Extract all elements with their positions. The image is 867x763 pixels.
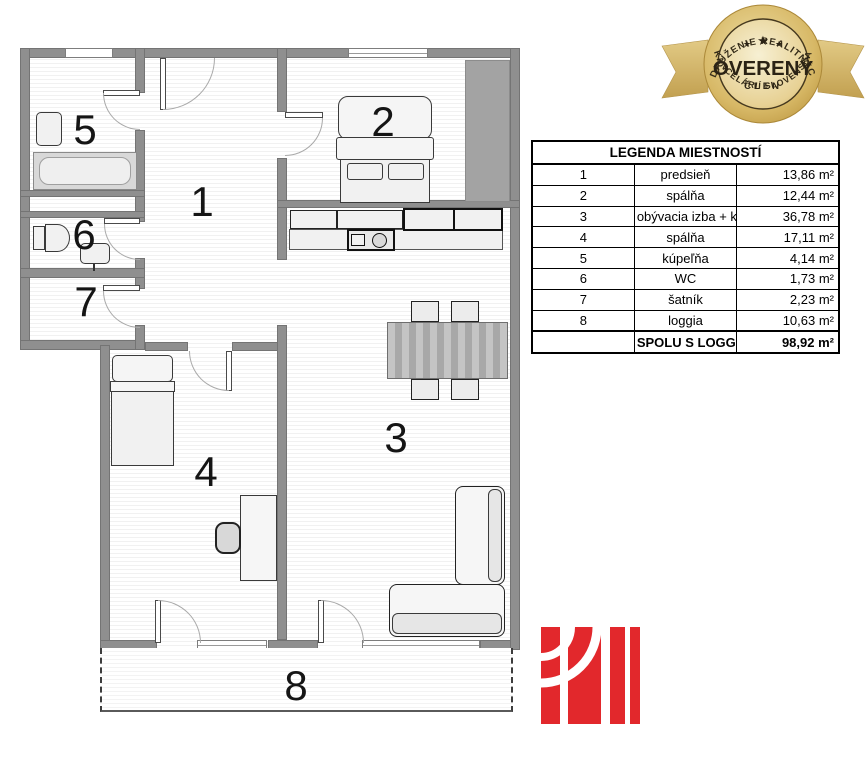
wall xyxy=(135,325,145,350)
floorplan-page: 1 2 3 4 5 6 7 8 LEGENDA MIESTNOSTÍ 1 pre… xyxy=(0,0,867,763)
total-area: 98,92 m² xyxy=(737,331,839,353)
wall xyxy=(277,158,287,260)
room-area: 4,14 m² xyxy=(737,248,839,269)
single-bed-pillow xyxy=(112,355,173,382)
dining-chair xyxy=(411,301,439,322)
dining-chair xyxy=(451,301,479,322)
window xyxy=(65,48,113,58)
dining-chair xyxy=(451,379,479,400)
wall xyxy=(277,325,287,640)
wall xyxy=(20,48,30,350)
room-area: 2,23 m² xyxy=(737,289,839,310)
window xyxy=(348,48,428,58)
room-name: spálňa xyxy=(634,185,736,206)
wall xyxy=(145,342,188,351)
room-number: 2 xyxy=(532,185,634,206)
kitchen-cabinet-divider xyxy=(453,209,455,230)
room-number: 4 xyxy=(532,227,634,248)
room-area: 13,86 m² xyxy=(737,164,839,185)
total-empty-cell xyxy=(532,331,634,353)
double-bed-cushion xyxy=(388,163,424,180)
agency-logo xyxy=(541,627,640,724)
wardrobe-block xyxy=(465,60,510,202)
star-icon: ★ xyxy=(757,33,769,48)
kitchen-cabinet xyxy=(290,210,337,229)
table-row: 5 kúpeľňa 4,14 m² xyxy=(532,248,839,269)
certification-badge: ZDRUŽENIE REALITNÝCH KANCELÁRIÍ SLOVENSK… xyxy=(660,2,866,126)
room-name: kúpeľňa xyxy=(634,248,736,269)
room-label-8: 8 xyxy=(284,665,307,707)
legend-title: LEGENDA MIESTNOSTÍ xyxy=(532,141,839,164)
room-area: 12,44 m² xyxy=(737,185,839,206)
wall xyxy=(510,48,520,650)
star-icon: ★ xyxy=(743,39,751,49)
room-label-4: 4 xyxy=(194,451,217,493)
room-label-6: 6 xyxy=(72,214,95,256)
table-row: 1 predsieň 13,86 m² xyxy=(532,164,839,185)
dining-table xyxy=(387,322,508,379)
room-name: šatník xyxy=(634,289,736,310)
room-area: 10,63 m² xyxy=(737,310,839,331)
wall xyxy=(20,268,145,278)
table-total-row: SPOLU S LOGGIOU 98,92 m² xyxy=(532,331,839,353)
bathtub-inner xyxy=(39,157,131,185)
room-area: 1,73 m² xyxy=(737,268,839,289)
room-number: 5 xyxy=(532,248,634,269)
room-label-1: 1 xyxy=(190,181,213,223)
ribbon-right xyxy=(818,40,864,98)
room-number: 6 xyxy=(532,268,634,289)
kitchen-sink-bowl xyxy=(372,233,387,248)
wall xyxy=(20,340,145,350)
sofa-chaise-back xyxy=(488,489,502,582)
room-label-7: 7 xyxy=(74,281,97,323)
legend-table: LEGENDA MIESTNOSTÍ 1 predsieň 13,86 m² 2… xyxy=(531,140,840,354)
room-number: 7 xyxy=(532,289,634,310)
room-area: 17,11 m² xyxy=(737,227,839,248)
room-name: WC xyxy=(634,268,736,289)
wall xyxy=(277,48,287,112)
kitchen-counter xyxy=(289,229,503,250)
table-row: 4 spálňa 17,11 m² xyxy=(532,227,839,248)
badge-subtitle: ČLEN xyxy=(744,80,782,92)
room-number: 8 xyxy=(532,310,634,331)
floor-plan: 1 2 3 4 5 6 7 8 xyxy=(0,0,540,763)
room-name: predsieň xyxy=(634,164,736,185)
star-icon: ★ xyxy=(775,39,783,49)
single-bed-blanket xyxy=(111,391,174,466)
ribbon-left xyxy=(662,40,708,98)
room-number: 3 xyxy=(532,206,634,227)
kitchen-cabinet xyxy=(337,210,403,229)
room-area: 36,78 m² xyxy=(737,206,839,227)
table-row: 3 obývacia izba + kuchyňa 36,78 m² xyxy=(532,206,839,227)
dining-chair xyxy=(411,379,439,400)
toilet-bowl xyxy=(45,224,70,252)
wall xyxy=(100,345,110,650)
total-label: SPOLU S LOGGIOU xyxy=(634,331,736,353)
desk xyxy=(240,495,277,581)
kitchen-hob xyxy=(351,234,365,246)
wc-sink-faucet xyxy=(93,264,95,271)
wall xyxy=(135,48,145,93)
toilet-tank xyxy=(33,226,45,250)
room-name: spálňa xyxy=(634,227,736,248)
office-chair xyxy=(215,522,241,554)
room-name: obývacia izba + kuchyňa xyxy=(634,206,736,227)
room-name: loggia xyxy=(634,310,736,331)
table-row: 2 spálňa 12,44 m² xyxy=(532,185,839,206)
bathroom-sink xyxy=(36,112,62,146)
table-row: 7 šatník 2,23 m² xyxy=(532,289,839,310)
sofa-seat-back xyxy=(392,613,502,634)
room-label-2: 2 xyxy=(371,101,394,143)
table-row: 8 loggia 10,63 m² xyxy=(532,310,839,331)
room-label-3: 3 xyxy=(384,417,407,459)
room-label-5: 5 xyxy=(73,109,96,151)
table-row: 6 WC 1,73 m² xyxy=(532,268,839,289)
room-number: 1 xyxy=(532,164,634,185)
badge-title: OVERENÝ xyxy=(713,56,814,80)
wall xyxy=(20,190,145,197)
double-bed-cushion xyxy=(347,163,383,180)
